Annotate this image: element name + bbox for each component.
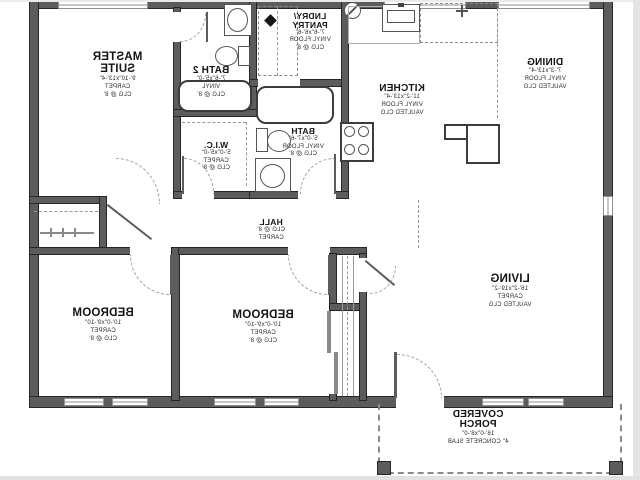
bathtub-icon	[256, 86, 334, 124]
room-dims: 7'-6"x5'-0"	[178, 76, 244, 84]
door-swing-arc	[300, 158, 334, 194]
sink-icon	[260, 164, 285, 188]
room-label-laundry-pantry: LNDRY/ PANTRY 7'-6"x6'-6" VINYL FLOOR CL…	[272, 12, 348, 53]
room-name: BATH 2	[178, 66, 244, 76]
bypass-door-panel	[334, 352, 338, 394]
wall-master-closet-top	[30, 197, 106, 203]
room-name: BEDROOM	[218, 310, 308, 322]
floor-transition-line	[418, 200, 419, 248]
porch-post	[378, 462, 390, 474]
burner-icon	[358, 126, 369, 137]
room-label-hall: HALL CLG @ 8' CARPET	[245, 218, 297, 242]
room-floor: CARPET	[218, 330, 308, 338]
room-name: COVERED PORCH	[428, 410, 528, 431]
room-dims: 7'-6"x6'-6"	[272, 30, 348, 38]
room-ceiling: CLG @ 8'	[272, 45, 348, 53]
room-note: 4" CONCRETE SLAB	[428, 439, 528, 447]
wall-bedroom-divider	[172, 248, 179, 400]
room-ceiling: CLG @ 8'	[245, 227, 297, 235]
refrigerator-cabinet-dashed	[420, 3, 498, 43]
room-ceiling: CLG @ 8'	[60, 92, 175, 100]
room-dims: 16'-2"x19'-2"	[468, 286, 552, 294]
wall-stub	[100, 197, 106, 254]
closet-shelf-line	[182, 122, 246, 123]
counter-peninsula	[466, 124, 500, 164]
room-label-bath: BATH 5'-0"x7'-6" VINYL FLOOR CLG @ 8'	[278, 127, 328, 159]
exterior-wall-left	[30, 2, 38, 405]
door-swing-arc	[130, 255, 170, 295]
closet-shelf-line	[342, 256, 343, 396]
room-ceiling: VAULTED CLG	[468, 302, 552, 310]
room-dims: 10'-0"x9'-10"	[218, 322, 308, 330]
bypass-door-panel	[327, 311, 331, 353]
toilet-tank	[238, 46, 250, 66]
window	[64, 398, 104, 406]
room-floor: VINYL FLOOR	[505, 76, 585, 84]
hanger-tick	[62, 228, 64, 237]
room-dims: 5'-0"x7'-6"	[278, 136, 328, 144]
room-label-covered-porch: COVERED PORCH 16'-0"x8'-0" 4" CONCRETE S…	[428, 410, 528, 446]
faucet-icon	[398, 3, 404, 7]
room-floor: VINYL	[178, 84, 244, 92]
door-leaf	[170, 255, 172, 295]
door-leaf	[328, 255, 330, 295]
room-ceiling: CLG @ 8'	[178, 92, 244, 100]
room-floor: CARPET	[245, 235, 297, 243]
porch-post	[610, 462, 622, 474]
door-leaf	[206, 12, 208, 42]
room-label-master-suite: MASTER SUITE 9'-10"x13'-4" CARPET CLG @ …	[60, 52, 175, 99]
room-name: BEDROOM	[58, 308, 148, 320]
door-swing-arc	[370, 266, 396, 294]
room-label-kitchen: KITCHEN 11'-2"x13'-4" VINYL FLOOR VAULTE…	[362, 84, 442, 118]
room-floor: CARPET	[60, 84, 175, 92]
door-swing-arc	[288, 255, 328, 295]
window	[214, 398, 256, 406]
room-label-dining: DINING 7'-3"x13'-4" VINYL FLOOR VAULTED …	[505, 58, 585, 92]
toilet-icon	[215, 46, 238, 66]
door-swing-arc	[397, 354, 442, 398]
closet-shelf-line	[353, 256, 354, 396]
closet-rod-line	[347, 256, 348, 396]
room-name: BATH	[278, 127, 328, 136]
room-ceiling: CLG @ 8'	[58, 336, 148, 344]
hanger-tick	[50, 228, 52, 237]
room-name: DINING	[505, 58, 585, 68]
floor-transition-line	[497, 8, 498, 118]
room-floor: VINYL FLOOR	[362, 102, 442, 110]
room-floor: VINYL FLOOR	[278, 144, 328, 152]
room-dims: 5'-0"x5'-0"	[186, 150, 246, 158]
door-leaf	[107, 204, 152, 240]
room-name: LIVING	[468, 274, 552, 286]
bedroom2-door-opening	[288, 247, 330, 255]
room-floor: VINYL FLOOR	[272, 37, 348, 45]
closet-shelf-line	[34, 211, 98, 212]
room-label-bath2: BATH 2 7'-6"x5'-0" VINYL CLG @ 8'	[178, 66, 244, 100]
room-name: LNDRY/ PANTRY	[272, 12, 348, 30]
room-label-bedroom-1: BEDROOM 10'-0"x9'-10" CARPET CLG @ 8'	[58, 308, 148, 343]
scan-artifact	[0, 0, 640, 2]
window	[498, 1, 590, 9]
room-name: KITCHEN	[362, 84, 442, 94]
door-leaf	[334, 154, 336, 194]
room-name: W.I.C.	[186, 141, 246, 150]
room-label-bedroom-2: BEDROOM 10'-0"x9'-10" CARPET CLG @ 8'	[218, 310, 308, 345]
door-swing-arc	[116, 158, 160, 204]
closet-rod	[40, 232, 94, 234]
door-swing-arc	[180, 14, 206, 42]
window	[603, 196, 613, 216]
room-ceiling: CLG @ 8'	[218, 338, 308, 346]
window	[58, 1, 148, 9]
sink-icon	[227, 8, 248, 32]
hanger-tick	[74, 228, 76, 237]
room-dims: 7'-3"x13'-4"	[505, 68, 585, 76]
counter-peninsula	[444, 124, 468, 140]
room-ceiling: VAULTED CLG	[505, 84, 585, 92]
room-dims: 9'-10"x13'-4"	[60, 76, 175, 84]
room-floor: CARPET	[186, 158, 246, 166]
wall-hall-bottom	[179, 248, 366, 254]
window	[264, 398, 299, 406]
room-label-living: LIVING 16'-2"x19'-2" CARPET VAULTED CLG	[468, 274, 552, 309]
burner-icon	[358, 144, 369, 155]
window	[112, 398, 148, 406]
room-name: HALL	[245, 218, 297, 227]
room-floor: CARPET	[468, 294, 552, 302]
scan-artifact	[633, 0, 640, 480]
closet-shelf-line	[246, 122, 247, 186]
room-ceiling: VAULTED CLG	[362, 110, 442, 118]
room-ceiling: CLG @ 8'	[278, 151, 328, 159]
plus-mark-icon	[461, 5, 463, 17]
kitchen-sink-bowl	[387, 10, 415, 23]
scan-artifact	[0, 476, 640, 480]
room-floor: CARPET	[58, 328, 148, 336]
burner-icon	[344, 126, 355, 137]
room-name: MASTER SUITE	[60, 52, 175, 76]
room-dims: 10'-0"x9'-10"	[58, 320, 148, 328]
room-label-wic: W.I.C. 5'-0"x5'-0" CARPET CLG @ 8'	[186, 141, 246, 173]
burner-icon	[344, 144, 355, 155]
room-dims: 11'-2"x13'-4"	[362, 94, 442, 102]
room-ceiling: CLG @ 8'	[186, 165, 246, 173]
bedroom1-door-opening	[130, 247, 172, 255]
room-dims: 16'-0"x8'-0"	[428, 431, 528, 439]
floor-plan: MASTER SUITE 9'-10"x13'-4" CARPET CLG @ …	[0, 0, 640, 480]
